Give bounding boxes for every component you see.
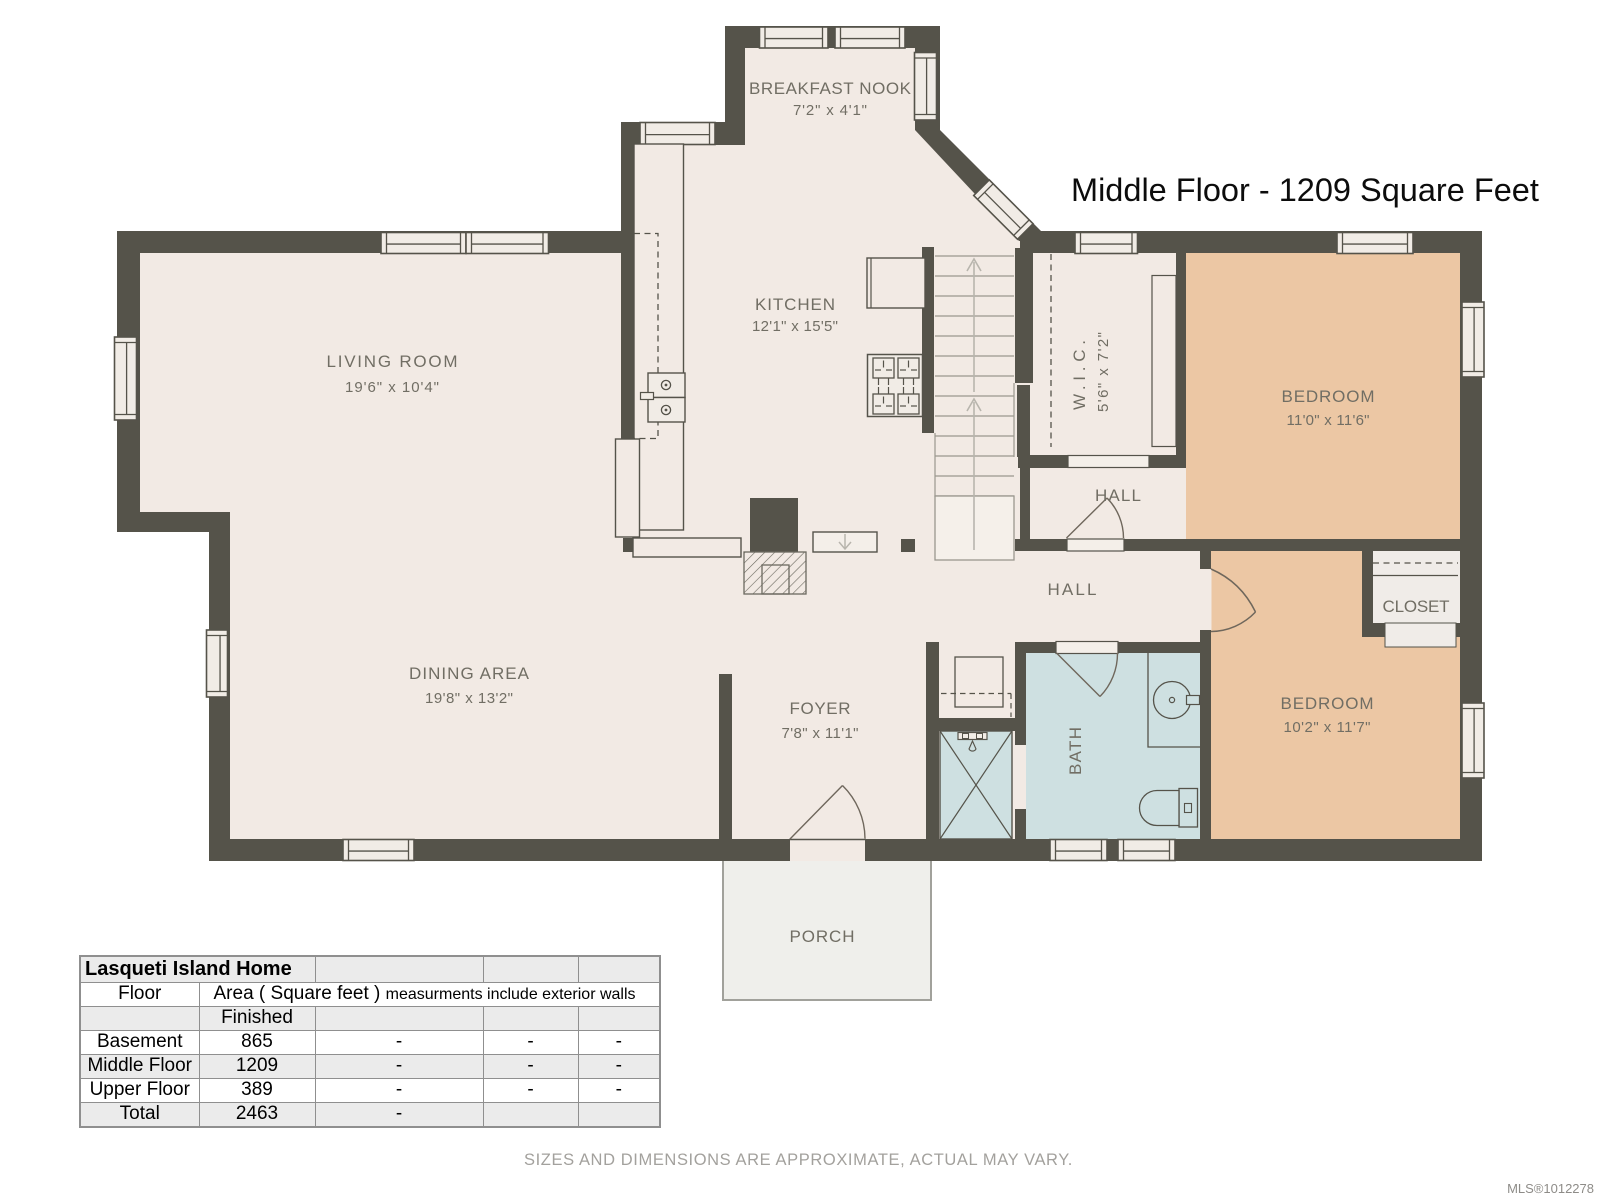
svg-text:BREAKFAST NOOK: BREAKFAST NOOK bbox=[749, 79, 912, 98]
svg-text:KITCHEN: KITCHEN bbox=[755, 295, 835, 314]
svg-text:BEDROOM: BEDROOM bbox=[1281, 694, 1374, 713]
svg-text:12'1" x 15'5": 12'1" x 15'5" bbox=[752, 318, 838, 335]
svg-text:DINING AREA: DINING AREA bbox=[409, 664, 530, 683]
svg-text:HALL: HALL bbox=[1095, 486, 1141, 505]
svg-text:5'6" x 7'2": 5'6" x 7'2" bbox=[1095, 332, 1112, 412]
svg-text:BATH: BATH bbox=[1066, 727, 1085, 775]
svg-text:7'2" x 4'1": 7'2" x 4'1" bbox=[793, 102, 867, 119]
svg-text:11'0" x 11'6": 11'0" x 11'6" bbox=[1287, 412, 1370, 429]
svg-text:10'2" x 11'7": 10'2" x 11'7" bbox=[1284, 719, 1371, 736]
svg-text:19'8" x 13'2": 19'8" x 13'2" bbox=[425, 690, 513, 707]
svg-text:19'6" x 10'4": 19'6" x 10'4" bbox=[345, 379, 439, 396]
svg-text:BEDROOM: BEDROOM bbox=[1282, 387, 1375, 406]
svg-text:PORCH: PORCH bbox=[790, 927, 855, 946]
svg-text:LIVING ROOM: LIVING ROOM bbox=[327, 352, 458, 371]
svg-text:7'8" x 11'1": 7'8" x 11'1" bbox=[782, 725, 859, 742]
svg-text:CLOSET: CLOSET bbox=[1383, 597, 1452, 616]
svg-text:HALL: HALL bbox=[1048, 580, 1097, 599]
svg-text:FOYER: FOYER bbox=[790, 699, 851, 718]
